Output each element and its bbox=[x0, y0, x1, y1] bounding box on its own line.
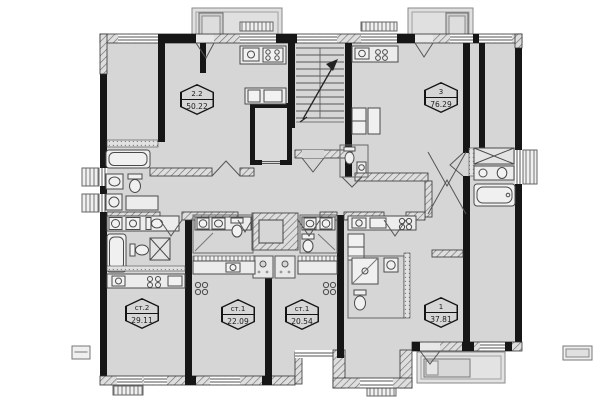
washer-icon bbox=[106, 194, 122, 210]
window-icon bbox=[515, 150, 522, 184]
toilet-icon bbox=[344, 147, 355, 164]
unit-number: 1 bbox=[426, 299, 457, 313]
partition bbox=[107, 140, 158, 147]
sink-icon bbox=[126, 218, 140, 230]
partition bbox=[404, 253, 410, 318]
cabinet-icon bbox=[352, 108, 366, 134]
sink-icon bbox=[304, 218, 316, 229]
washer-icon bbox=[109, 218, 122, 230]
sink-icon bbox=[106, 174, 123, 189]
unit-number: ст.1 bbox=[223, 301, 254, 315]
unit-area: 76.29 bbox=[426, 98, 457, 112]
unit-label-2-2: 2.2 50.22 bbox=[180, 84, 214, 115]
window-icon bbox=[480, 343, 505, 351]
sink-icon bbox=[357, 162, 366, 173]
toilet-icon bbox=[146, 218, 163, 230]
window-sill bbox=[240, 22, 273, 31]
toilet-icon bbox=[130, 244, 149, 256]
window-icon bbox=[360, 379, 393, 388]
window-sill bbox=[82, 168, 99, 186]
window-icon bbox=[295, 350, 333, 358]
stove-icon bbox=[263, 48, 283, 62]
sink-icon bbox=[243, 48, 259, 61]
bathtub-icon bbox=[474, 184, 515, 206]
wardrobe-icon bbox=[150, 238, 170, 260]
floor-plan-canvas bbox=[0, 0, 600, 400]
unit-label-st1a: ст.1 22.09 bbox=[221, 299, 255, 330]
sink-icon bbox=[212, 218, 225, 229]
toilet-icon bbox=[354, 290, 366, 310]
toilet-icon bbox=[302, 234, 314, 252]
unit-area: 22.09 bbox=[223, 315, 254, 329]
washer-icon bbox=[320, 218, 332, 229]
unit-number: 3 bbox=[426, 84, 457, 98]
unit-label-st2: ст.2 29.11 bbox=[125, 298, 159, 329]
unit-number: ст.2 bbox=[127, 300, 158, 314]
unit-area: 29.11 bbox=[127, 314, 158, 328]
sink-icon bbox=[226, 263, 240, 272]
kitchen-counter-edge bbox=[193, 256, 255, 261]
wardrobe-icon bbox=[474, 148, 514, 164]
unit-label-st1b: ст.1 20.54 bbox=[285, 299, 319, 330]
shower-icon bbox=[352, 258, 378, 284]
bathtub-icon bbox=[106, 150, 150, 168]
partition bbox=[107, 266, 185, 271]
sink-icon bbox=[355, 48, 369, 59]
toilet-icon bbox=[128, 174, 142, 193]
kitchen-counter-edge bbox=[298, 256, 337, 261]
unit-area: 20.54 bbox=[287, 315, 318, 329]
toilet-icon bbox=[231, 218, 243, 237]
unit-area: 50.22 bbox=[182, 100, 213, 114]
unit-label-3: 3 76.29 bbox=[424, 82, 458, 113]
sink-icon bbox=[479, 169, 487, 177]
kitchen-counter bbox=[298, 261, 337, 274]
sink-icon bbox=[112, 276, 125, 286]
window-sill bbox=[523, 150, 537, 184]
toilet-icon bbox=[497, 168, 507, 179]
unit-number: ст.1 bbox=[287, 301, 318, 315]
balcony-icon bbox=[417, 352, 505, 383]
unit-label-1: 1 37.81 bbox=[424, 297, 458, 328]
window-sill bbox=[361, 22, 397, 31]
window-sill bbox=[82, 194, 99, 212]
window-sill bbox=[367, 388, 396, 396]
cabinet-icon bbox=[368, 108, 380, 134]
washer-icon bbox=[197, 218, 209, 229]
washer-icon bbox=[384, 258, 398, 272]
utility-shaft bbox=[252, 213, 298, 278]
counter bbox=[126, 196, 158, 210]
sink-icon bbox=[352, 218, 366, 228]
unit-area: 37.81 bbox=[426, 313, 457, 327]
corner-marker bbox=[72, 346, 90, 359]
elevator-shaft-icon bbox=[250, 103, 292, 165]
window-sill bbox=[113, 386, 143, 395]
corner-marker bbox=[563, 346, 592, 360]
unit-number: 2.2 bbox=[182, 86, 213, 100]
floor-plan-page: 2.2 50.22 3 76.29 ст.2 29.11 ст.1 22.09 … bbox=[0, 0, 600, 400]
kitchen-counter bbox=[193, 261, 255, 274]
